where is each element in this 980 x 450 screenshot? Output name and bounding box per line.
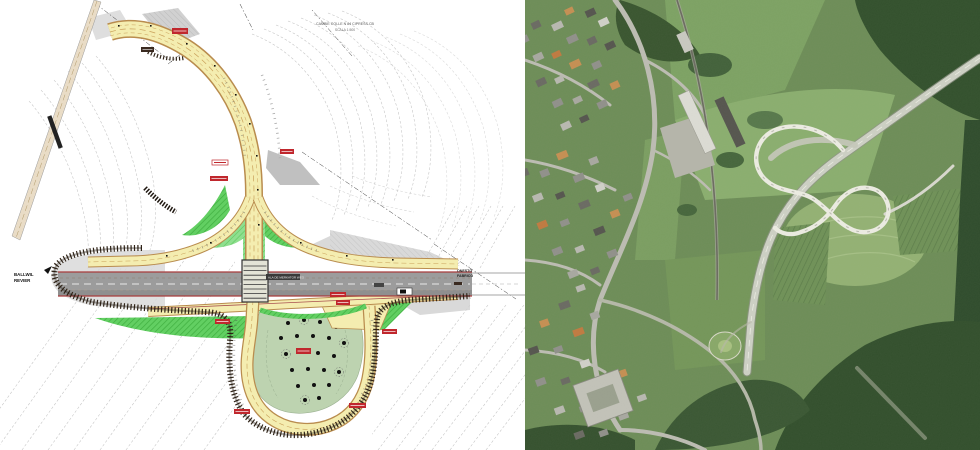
annotation-box <box>336 300 350 305</box>
aerial-photo <box>525 0 980 450</box>
photo-grain-overlay <box>525 0 980 450</box>
engineering-plan-panel: CAMBIE COLLE N 84 CIPRESS CB SCALA 1:500… <box>0 0 525 450</box>
highway-name-badge: ALA DE MERKATOR WEG <box>266 274 305 280</box>
screenshot-stage: CAMBIE COLLE N 84 CIPRESS CB SCALA 1:500… <box>0 0 980 450</box>
highway-name-text: ALA DE MERKATOR WEG <box>268 276 305 280</box>
annotation-box <box>454 282 462 285</box>
aerial-photo-panel <box>525 0 980 450</box>
annotation-box <box>296 348 311 354</box>
plan-drawing: CAMBIE COLLE N 84 CIPRESS CB SCALA 1:500… <box>0 0 525 450</box>
annotation-box <box>330 292 346 297</box>
plan-title-line2: SCALA 1:500 <box>335 28 355 32</box>
plan-title-line1: CAMBIE COLLE N 84 CIPRESS CB <box>316 22 375 26</box>
overpass-bridge <box>242 260 268 302</box>
annotation-box <box>172 28 188 34</box>
west-destination-label-line2: REVIER <box>14 278 31 283</box>
annotation-box <box>349 403 366 408</box>
annotation-box <box>382 329 397 334</box>
annotation-box <box>212 160 228 165</box>
annotation-box <box>234 409 250 414</box>
west-destination-label-line1: BALLWIL <box>14 272 34 277</box>
annotation-box <box>215 319 230 324</box>
annotation-box <box>210 176 228 181</box>
annotation-box <box>141 47 154 52</box>
east-destination-label-line2: FABRICO <box>457 274 473 278</box>
annotation-box <box>280 149 294 154</box>
east-destination-label-line1: ONESTO <box>457 269 472 273</box>
